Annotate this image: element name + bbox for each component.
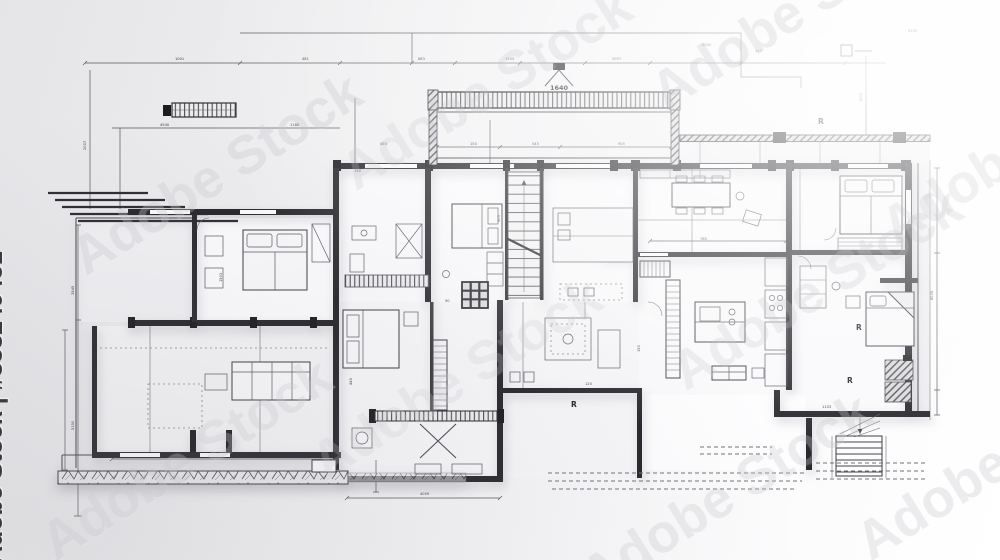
tiny-dimension: 90: [445, 299, 450, 303]
tiny-dimension: 150: [354, 169, 362, 173]
tiny-dimension: 8035: [930, 291, 934, 300]
section-marker: R: [571, 400, 577, 409]
tiny-dimension: 1503: [859, 93, 863, 102]
tiny-dimension: 150: [637, 344, 641, 352]
tiny-dimension: 481: [302, 57, 309, 61]
tiny-dimension: 120: [585, 382, 593, 386]
roof-cascade-lines: [48, 193, 238, 221]
tiny-dimension: 760: [700, 237, 708, 241]
tiny-dimension: 905: [618, 142, 625, 146]
section-marker: R: [847, 376, 853, 385]
tiny-dimension: 883: [418, 57, 425, 61]
tiny-dimension: 150: [470, 142, 478, 146]
tiny-dimension: 450: [380, 142, 388, 146]
tiny-dimension: 1503: [505, 57, 514, 61]
tiny-dimension: 5000: [170, 453, 180, 457]
tiny-dimension: 5057: [612, 57, 621, 61]
tiny-dimension: 445: [755, 49, 762, 53]
tiny-dimension: 1503: [219, 273, 223, 282]
stone-wall-hatch: [58, 471, 466, 484]
tiny-dimension: 545: [532, 142, 539, 146]
tiny-dimension: 445: [349, 378, 353, 385]
tiny-dimension: 8300: [908, 29, 918, 33]
exterior-stairs: [832, 410, 886, 478]
tiny-dimension: 2007: [83, 141, 87, 150]
section-marker: R: [818, 117, 824, 126]
main-staircase: [506, 172, 542, 298]
tiny-dimension: 1001: [175, 57, 184, 61]
tiny-dimension: 3545: [71, 286, 75, 295]
laundry-ribbed-wall: [375, 411, 497, 421]
tiny-dimension: 8000: [702, 43, 712, 47]
roof-deck-wall: [680, 135, 930, 142]
tiny-dimension: 1103: [822, 405, 831, 409]
tiny-dimension: 905: [497, 215, 501, 222]
blueprint-floor-plan: 1001481883150350578000445830045401188450…: [0, 0, 1000, 560]
tiny-dimension: 1188: [290, 123, 300, 127]
kitchen-island: [695, 302, 745, 342]
tiny-dimension: 4540: [160, 123, 170, 127]
ridge-dimension-label: 1640: [550, 84, 569, 92]
wardrobe-strip: [345, 275, 429, 287]
pergola-strip: [430, 92, 678, 108]
tiny-dimension: 4059: [420, 492, 430, 496]
stock-photo-blueprint: 1001481883150350578000445830045401188450…: [0, 0, 1000, 560]
tiny-dimension: 5150: [71, 420, 75, 430]
skylight-grid: [462, 282, 488, 308]
section-marker: R: [856, 323, 862, 332]
watermark-side-text: Adobe Stock | #838249451: [0, 251, 9, 560]
